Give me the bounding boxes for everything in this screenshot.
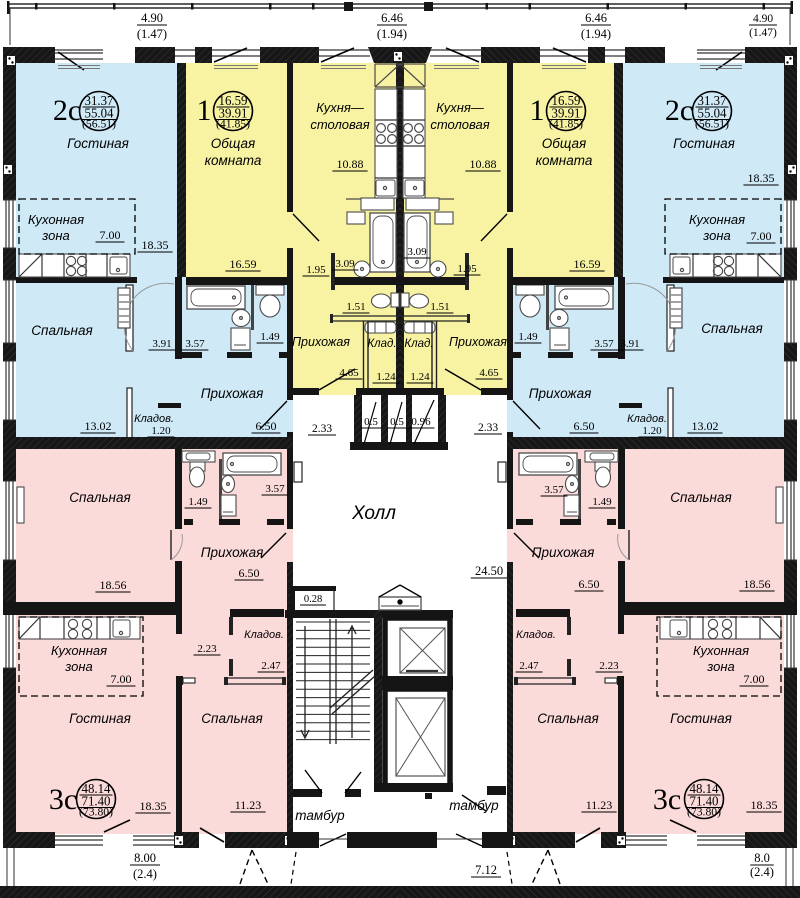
- svg-text:тамбур: тамбур: [449, 798, 499, 813]
- svg-text:2с: 2с: [665, 94, 693, 127]
- svg-text:Кухонная: Кухонная: [689, 212, 745, 227]
- svg-text:8.00: 8.00: [134, 851, 156, 865]
- svg-text:0.5: 0.5: [390, 416, 404, 428]
- svg-text:1.49: 1.49: [518, 331, 538, 343]
- svg-text:Спальная: Спальная: [201, 711, 262, 726]
- svg-text:10.88: 10.88: [337, 157, 364, 171]
- svg-text:Общая: Общая: [211, 136, 255, 151]
- svg-text:(73.80): (73.80): [79, 805, 113, 819]
- svg-text:18.35: 18.35: [751, 798, 778, 812]
- svg-text:Кухонная: Кухонная: [51, 643, 107, 658]
- svg-text:тамбур: тамбур: [295, 808, 345, 823]
- svg-text:0.28: 0.28: [304, 594, 322, 605]
- svg-text:0.96: 0.96: [411, 416, 431, 428]
- svg-text:2.47: 2.47: [261, 660, 281, 672]
- svg-text:зона: зона: [702, 228, 731, 243]
- svg-text:Спальная: Спальная: [670, 490, 731, 505]
- svg-text:Спальная: Спальная: [537, 711, 598, 726]
- svg-text:6.50: 6.50: [579, 577, 600, 591]
- svg-text:7.12: 7.12: [475, 863, 497, 877]
- svg-text:(41.85): (41.85): [216, 117, 250, 131]
- svg-text:1.95: 1.95: [457, 263, 477, 275]
- svg-text:18.35: 18.35: [748, 171, 775, 185]
- svg-text:3.09: 3.09: [335, 258, 355, 270]
- svg-text:1.51: 1.51: [430, 301, 449, 313]
- svg-text:Клад.: Клад.: [404, 338, 433, 350]
- svg-text:комната: комната: [536, 153, 593, 168]
- svg-text:(56.51): (56.51): [82, 117, 116, 131]
- svg-text:1.49: 1.49: [188, 496, 208, 508]
- svg-text:1.20: 1.20: [642, 425, 662, 437]
- svg-text:7.00: 7.00: [751, 229, 772, 243]
- svg-text:Кухонная: Кухонная: [28, 212, 84, 227]
- svg-text:Кладов.: Кладов.: [627, 413, 667, 425]
- svg-text:6.50: 6.50: [256, 419, 277, 433]
- svg-text:2с: 2с: [53, 94, 81, 127]
- svg-text:1.20: 1.20: [151, 425, 171, 437]
- svg-text:Гостиная: Гостиная: [67, 136, 129, 151]
- svg-text:Прихожая: Прихожая: [529, 386, 592, 401]
- svg-text:Клад.: Клад.: [367, 338, 396, 350]
- svg-text:Спальная: Спальная: [31, 323, 92, 338]
- svg-text:11.23: 11.23: [586, 798, 613, 812]
- svg-text:8.0: 8.0: [754, 851, 770, 865]
- svg-text:3.91: 3.91: [152, 338, 171, 350]
- svg-text:(56.51): (56.51): [695, 117, 729, 131]
- svg-text:Гостиная: Гостиная: [673, 136, 735, 151]
- svg-text:2.23: 2.23: [197, 643, 217, 655]
- svg-text:6.50: 6.50: [239, 566, 260, 580]
- svg-text:(1.47): (1.47): [749, 27, 777, 39]
- svg-text:18.35: 18.35: [142, 238, 169, 252]
- svg-text:зона: зона: [41, 228, 70, 243]
- svg-text:1.49: 1.49: [260, 331, 280, 343]
- svg-text:1.24: 1.24: [410, 371, 430, 383]
- svg-text:Спальная: Спальная: [701, 321, 762, 336]
- svg-text:18.35: 18.35: [140, 799, 167, 813]
- svg-text:Кладов.: Кладов.: [516, 629, 556, 641]
- svg-text:1.49: 1.49: [592, 496, 612, 508]
- svg-text:4.65: 4.65: [339, 367, 359, 379]
- svg-text:1: 1: [530, 94, 545, 127]
- svg-text:Спальная: Спальная: [69, 490, 130, 505]
- svg-text:2.33: 2.33: [478, 422, 498, 434]
- svg-text:(73.80): (73.80): [687, 805, 721, 819]
- svg-text:6.46: 6.46: [585, 11, 607, 25]
- svg-text:7.00: 7.00: [744, 672, 765, 686]
- svg-text:Прихожая: Прихожая: [292, 335, 350, 349]
- svg-text:24.50: 24.50: [475, 564, 503, 578]
- svg-text:2.33: 2.33: [312, 423, 332, 435]
- svg-text:комната: комната: [205, 153, 262, 168]
- svg-text:Кухня—: Кухня—: [436, 100, 485, 115]
- svg-text:2.47: 2.47: [519, 660, 539, 672]
- svg-text:(1.94): (1.94): [581, 27, 611, 41]
- svg-text:Кухня—: Кухня—: [316, 100, 365, 115]
- svg-text:13.02: 13.02: [692, 419, 719, 433]
- svg-text:Кладов.: Кладов.: [244, 629, 284, 641]
- svg-text:столовая: столовая: [430, 117, 489, 132]
- svg-text:(1.47): (1.47): [137, 27, 167, 41]
- svg-text:4.65: 4.65: [479, 367, 499, 379]
- svg-text:0.5: 0.5: [364, 416, 378, 428]
- svg-text:6.50: 6.50: [574, 419, 595, 433]
- svg-text:Прихожая: Прихожая: [449, 335, 507, 349]
- svg-text:13.02: 13.02: [85, 419, 112, 433]
- svg-text:18.56: 18.56: [100, 578, 127, 592]
- svg-text:зона: зона: [64, 659, 93, 674]
- svg-text:Прихожая: Прихожая: [201, 386, 264, 401]
- svg-text:11.23: 11.23: [235, 798, 262, 812]
- svg-text:(1.94): (1.94): [377, 27, 407, 41]
- svg-text:3.57: 3.57: [594, 338, 614, 350]
- svg-text:16.59: 16.59: [574, 257, 601, 271]
- svg-text:Прихожая: Прихожая: [201, 545, 264, 560]
- svg-text:6.46: 6.46: [381, 11, 403, 25]
- svg-text:зона: зона: [706, 659, 735, 674]
- svg-text:(2.4): (2.4): [133, 867, 157, 881]
- svg-text:Прихожая: Прихожая: [532, 545, 595, 560]
- svg-text:1.24: 1.24: [376, 371, 396, 383]
- svg-text:(2.4): (2.4): [750, 865, 774, 879]
- svg-text:Кладов.: Кладов.: [134, 413, 174, 425]
- svg-text:1: 1: [197, 94, 212, 127]
- svg-text:Гостиная: Гостиная: [69, 711, 131, 726]
- svg-text:1.51: 1.51: [346, 301, 365, 313]
- svg-text:Гостиная: Гостиная: [670, 711, 732, 726]
- svg-text:столовая: столовая: [310, 117, 369, 132]
- svg-text:3.57: 3.57: [544, 484, 564, 496]
- svg-text:16.59: 16.59: [230, 257, 257, 271]
- svg-text:3с: 3с: [49, 783, 77, 816]
- svg-text:10.88: 10.88: [470, 157, 497, 171]
- svg-text:2.23: 2.23: [599, 660, 619, 672]
- svg-text:4.90: 4.90: [141, 11, 163, 25]
- svg-text:4.90: 4.90: [753, 13, 773, 25]
- svg-text:3с: 3с: [653, 783, 681, 816]
- svg-text:Кухонная: Кухонная: [693, 643, 749, 658]
- svg-text:1.95: 1.95: [306, 264, 326, 276]
- svg-text:3.57: 3.57: [265, 483, 285, 495]
- svg-text:3.57: 3.57: [185, 338, 205, 350]
- svg-text:(41.85): (41.85): [549, 117, 583, 131]
- svg-text:3.09: 3.09: [407, 246, 427, 258]
- svg-text:18.56: 18.56: [744, 577, 771, 591]
- svg-text:3.91: 3.91: [620, 338, 639, 350]
- svg-text:Холл: Холл: [351, 503, 396, 524]
- svg-text:Общая: Общая: [542, 136, 586, 151]
- svg-text:7.00: 7.00: [111, 672, 132, 686]
- svg-text:7.00: 7.00: [100, 228, 121, 242]
